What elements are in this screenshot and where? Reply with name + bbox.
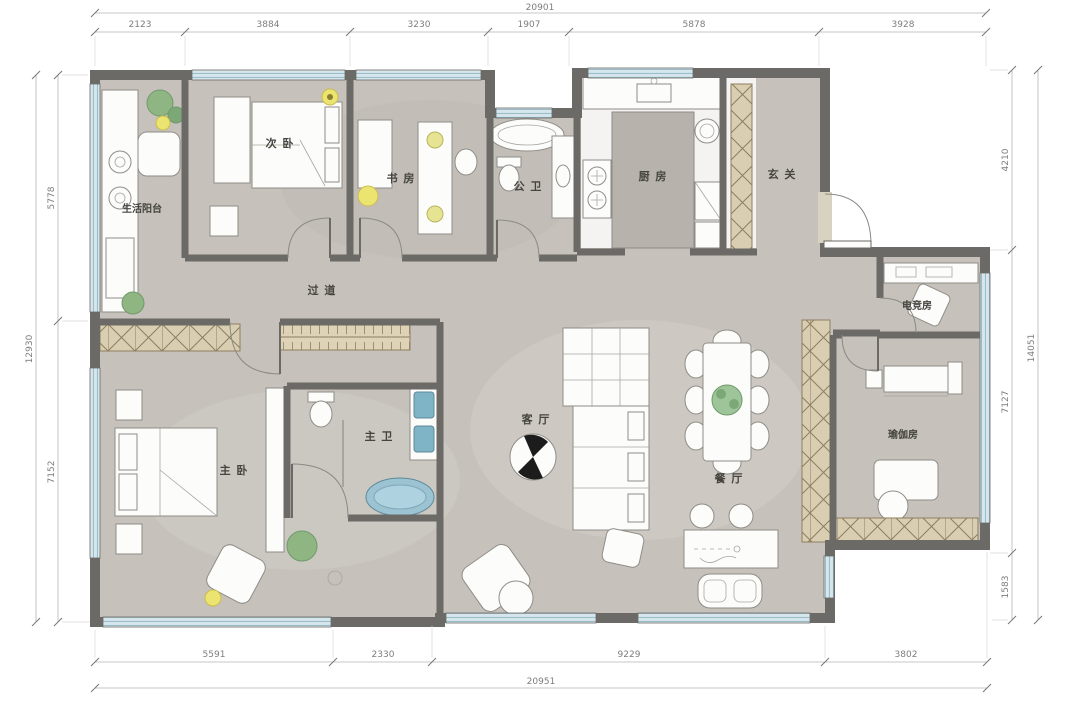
- dim-bottom-1: 5591: [203, 650, 226, 660]
- room-label-foyer: 玄 关: [768, 167, 797, 181]
- room-label-balcony: 生活阳台: [122, 202, 162, 215]
- dining-tall-cabinet: [802, 320, 830, 542]
- yoga-closet: [836, 518, 978, 542]
- room-label-public-bath: 公 卫: [514, 180, 543, 193]
- room-label-secondary-bedroom: 次 卧: [266, 136, 295, 150]
- dim-top-2: 3884: [257, 20, 280, 30]
- foyer-floor: [756, 77, 821, 248]
- dim-top-5: 5878: [683, 20, 706, 30]
- dim-left-1: 5778: [47, 186, 57, 209]
- room-label-master-bedroom: 主 卧: [220, 463, 249, 477]
- room-label-master-bath: 主 卫: [365, 429, 394, 443]
- room-label-living: 客 厅: [521, 412, 551, 426]
- dim-top-4: 1907: [518, 20, 541, 30]
- dim-top-total: 20901: [526, 3, 555, 13]
- dim-right-3: 1583: [1001, 576, 1011, 599]
- room-label-dining: 餐 厅: [714, 471, 744, 485]
- dim-bottom-4: 3802: [895, 650, 918, 660]
- room-label-corridor: 过 道: [308, 283, 337, 297]
- floor-plan-page: 生活阳台 次 卧 书 房 公 卫 厨 房 玄 关 过 道 电竞房 主 卧 主 卫…: [0, 0, 1080, 714]
- room-label-yoga: 瑜伽房: [888, 428, 918, 441]
- entry-door-frame: [818, 192, 832, 243]
- dim-left-total: 12930: [25, 334, 35, 363]
- dim-bottom-2: 2330: [372, 650, 395, 660]
- dim-right-2: 7127: [1001, 391, 1011, 414]
- foyer-shoe-cabinet: [731, 84, 752, 252]
- dim-top-1: 2123: [129, 20, 152, 30]
- dim-right-1: 4210: [1001, 148, 1011, 171]
- dim-right-total: 14051: [1027, 334, 1037, 363]
- room-label-kitchen: 厨 房: [639, 169, 668, 183]
- room-label-esports: 电竞房: [902, 299, 932, 312]
- dim-bottom-total: 20951: [527, 677, 556, 687]
- room-label-study: 书 房: [387, 171, 416, 185]
- dim-top-6: 3928: [892, 20, 915, 30]
- dim-left-2: 7152: [47, 461, 57, 484]
- dim-top-3: 3230: [408, 20, 431, 30]
- dim-bottom-3: 9229: [618, 650, 641, 660]
- balcony-laundry-counter: [102, 90, 138, 312]
- floor-plan-drawing: 生活阳台 次 卧 书 房 公 卫 厨 房 玄 关 过 道 电竞房 主 卧 主 卫…: [0, 0, 1080, 714]
